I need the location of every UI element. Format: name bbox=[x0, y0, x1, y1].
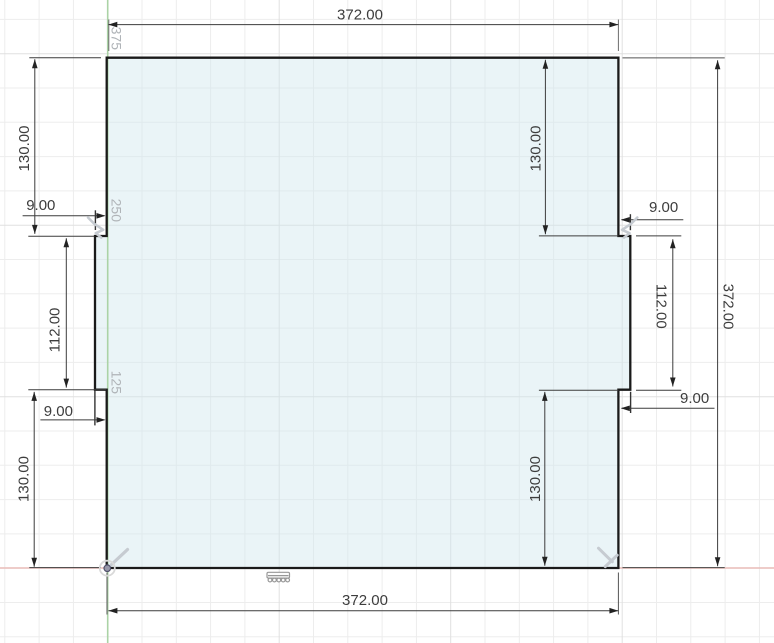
svg-text:9.00: 9.00 bbox=[680, 390, 709, 407]
svg-text:112.00: 112.00 bbox=[653, 284, 670, 329]
svg-text:130.00: 130.00 bbox=[16, 456, 33, 502]
svg-text:375: 375 bbox=[109, 27, 125, 51]
svg-text:125: 125 bbox=[109, 371, 125, 395]
svg-text:130.00: 130.00 bbox=[527, 126, 544, 172]
svg-text:130.00: 130.00 bbox=[16, 126, 33, 172]
svg-text:112.00: 112.00 bbox=[47, 308, 64, 353]
svg-text:130.00: 130.00 bbox=[527, 456, 544, 502]
svg-text:9.00: 9.00 bbox=[26, 197, 55, 214]
svg-text:372.00: 372.00 bbox=[720, 284, 737, 330]
svg-text:372.00: 372.00 bbox=[337, 7, 383, 24]
svg-text:9.00: 9.00 bbox=[44, 403, 73, 420]
svg-text:9.00: 9.00 bbox=[649, 199, 678, 216]
svg-text:250: 250 bbox=[109, 199, 125, 223]
svg-text:372.00: 372.00 bbox=[342, 592, 388, 609]
